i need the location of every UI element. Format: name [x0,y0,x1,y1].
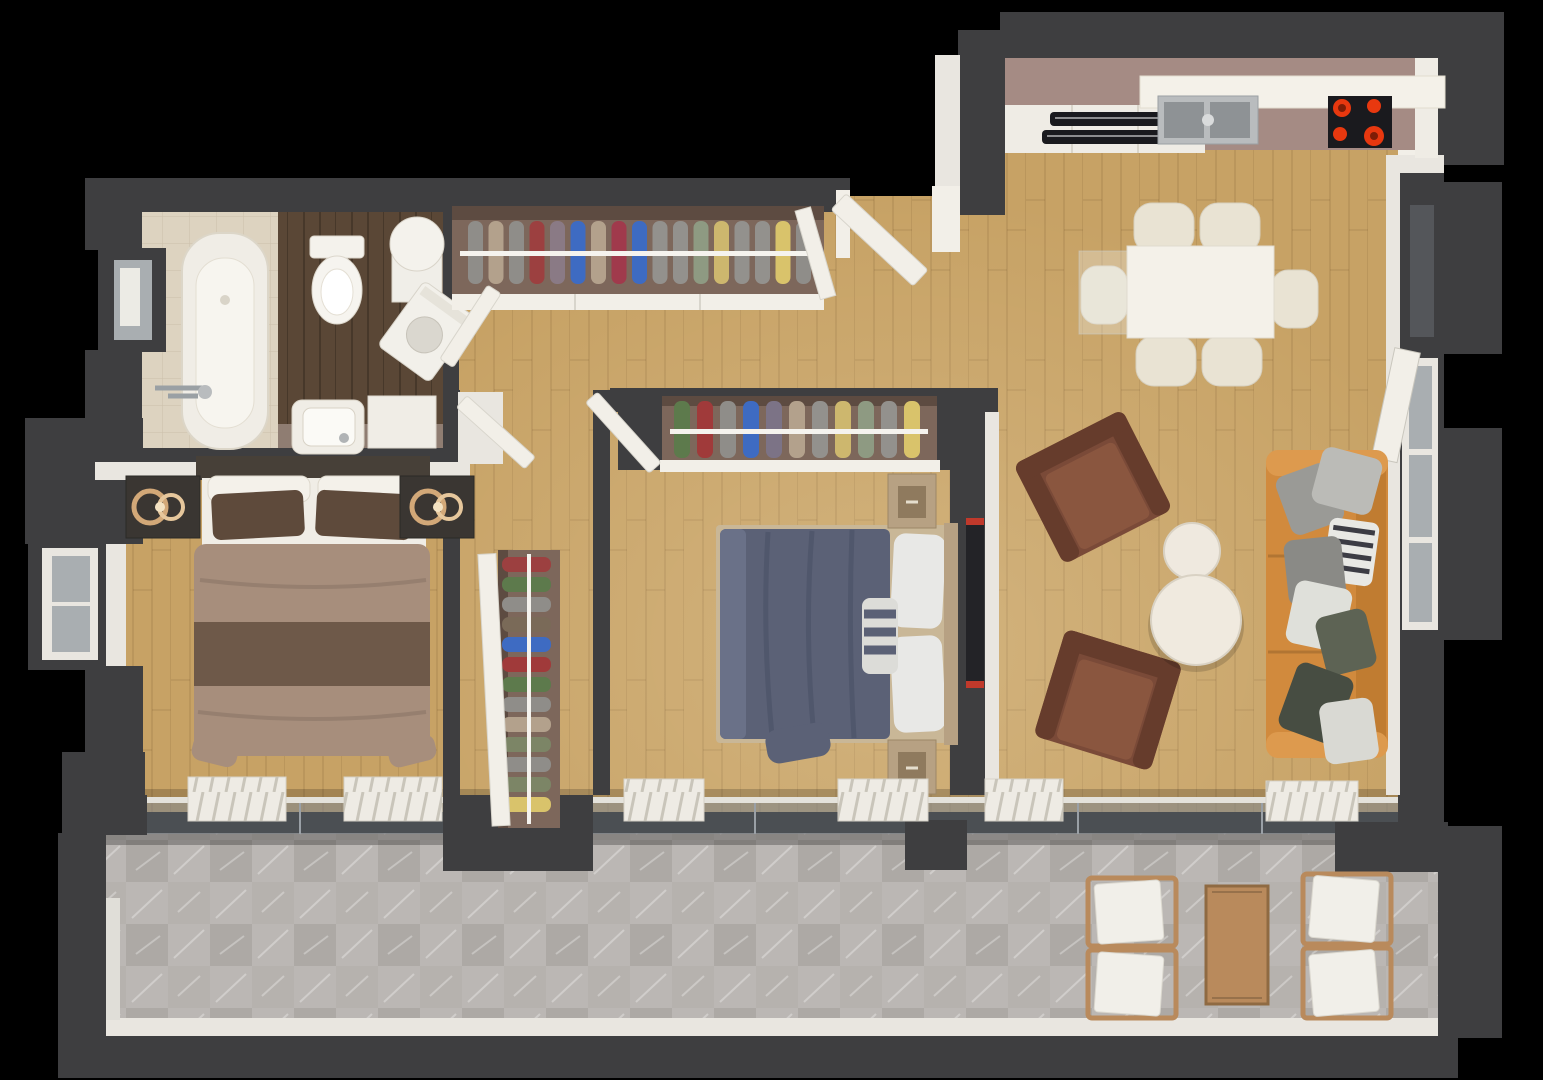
toilet [310,236,364,324]
toilet-tank [310,236,364,258]
wall-tv [966,518,984,688]
coffee-table-large [1151,575,1241,665]
hall-wardrobe-back [452,206,824,220]
balcony-chair-cushion [1308,875,1379,943]
wall-bottom-seg4 [1335,822,1448,872]
radiator [838,779,928,821]
wall-bottom-seg3 [905,820,967,870]
window-bay-dining-outer [1444,182,1502,354]
balcony-table [1206,886,1268,1004]
tv-edge-bottom [966,681,984,688]
right-wall-face [1386,170,1400,795]
burner-ring [1338,104,1346,112]
clothes-item [502,697,551,712]
balcony-furniture [1088,874,1391,1018]
dining-chair [1136,336,1196,386]
hall-wardrobe [452,206,836,310]
clothes-item [502,677,551,692]
clothes-item [502,757,551,772]
wall-bottom-seg1 [85,795,147,835]
lamp-bulb [155,502,165,512]
window-right-dining-recess [1410,205,1434,337]
dining-chair [1202,336,1262,386]
glass-door-glazing [145,803,1440,834]
sliding-glass-doors [145,789,1440,834]
window-right-sofa-glass [1409,366,1432,622]
tv-edge-top [966,518,984,525]
radiator [985,779,1063,821]
clothes-item [502,637,551,652]
corridor-wardrobe-rail [527,554,531,824]
bed1-duvet-stripe [194,622,430,686]
clothes-item [502,717,551,732]
wall-corridor-bedroom2 [593,390,610,795]
bed2 [716,523,958,765]
window-bay-sofa-outer [1444,428,1502,640]
burner [1367,99,1381,113]
hall-wardrobe-rail [460,251,816,256]
water-heater-top [390,217,444,271]
corridor-wardrobe [478,550,560,828]
bed1-pillow-brown [315,490,413,541]
wall-kitchen-right [1438,12,1504,165]
sofa [1266,445,1388,765]
lamp-bulb [433,502,443,512]
shower-head [198,385,212,399]
bathroom-towel [120,268,140,326]
balcony-chair-cushion [1094,880,1164,944]
wall-left-mid [85,350,142,420]
wall-left-lower [85,666,143,758]
balcony-chair-cushion [1308,949,1379,1017]
vanity-cabinet [368,396,436,448]
bedroom1-nightstand-left [126,476,200,538]
radiator [1266,781,1358,821]
clothes-item [502,577,551,592]
sink-faucet [339,433,349,443]
balcony-chair-cushion [1094,952,1164,1016]
bathtub-basin [196,258,254,428]
radiator [188,777,286,821]
clothes-item [502,657,551,672]
bed2-sheet-fold [720,529,746,739]
radiator [344,777,442,821]
clothes-item [502,737,551,752]
clothes-item [502,617,551,632]
floor-plan-canvas [0,0,1543,1080]
wall-kitchen-top [1000,12,1445,58]
burner [1333,127,1347,141]
entry-frame-right [932,186,960,252]
dining-table-glass-extension [1079,251,1127,334]
wall-bedroom1-corridor [443,390,460,795]
kitchen [1005,58,1445,158]
clothes-item [502,597,551,612]
clothes-item [502,777,551,792]
bathtub-drain [220,295,230,305]
window-bay-bedroom1 [28,538,106,670]
bed2-pillow [890,533,947,630]
sink-bowl-left [1164,102,1204,138]
balcony-wall-bottom [58,1036,1458,1078]
bed2-striped-pillow [862,598,898,674]
dining-chair [1272,270,1318,328]
bedroom2-wardrobe-doors [660,460,940,472]
bedroom2-wall-face [985,412,999,795]
balcony-border-bottom [106,1018,1438,1038]
wall-left-thick [25,418,143,544]
bedroom1-nightstand-right [400,476,474,538]
glass-door-shadow [145,789,1440,797]
balcony-shadow [106,833,1438,845]
bed2-headboard [944,523,958,745]
balcony-border-left [106,898,120,1020]
wall-entry-column [958,30,1005,215]
bedroom2-wardrobe-rail [670,429,928,434]
window-bay-bathroom [98,248,166,352]
tv-screen [966,518,984,688]
bed1-pillow-brown [211,490,305,541]
hall-wardrobe-doors [452,294,824,310]
toilet-seat [321,269,353,315]
floor-plan-render [0,0,1543,1080]
window-right-dining [1410,205,1434,337]
clothes-item [502,557,551,572]
sofa-pillow [1318,697,1380,766]
dining-table [1127,246,1274,338]
sink-bowl-right [1210,102,1250,138]
cooktop [1328,96,1392,148]
bedroom2-nightstand-top [888,474,936,528]
glass-door-rail [145,797,1440,803]
bed2-pillow [890,635,947,734]
balcony-wall-left [58,833,106,1055]
wall-left-upper [85,178,142,250]
coffee-table-small [1164,523,1220,579]
burner-ring [1370,132,1378,140]
radiator [624,779,704,821]
bedroom2-wardrobe [660,396,940,472]
kitchen-sink [1158,96,1258,144]
sink-tap [1202,114,1214,126]
